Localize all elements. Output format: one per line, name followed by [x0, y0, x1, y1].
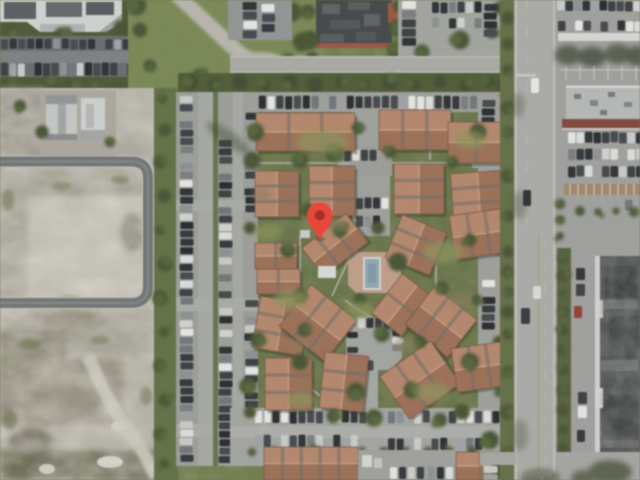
svg-text:Google: Google: [520, 469, 553, 480]
